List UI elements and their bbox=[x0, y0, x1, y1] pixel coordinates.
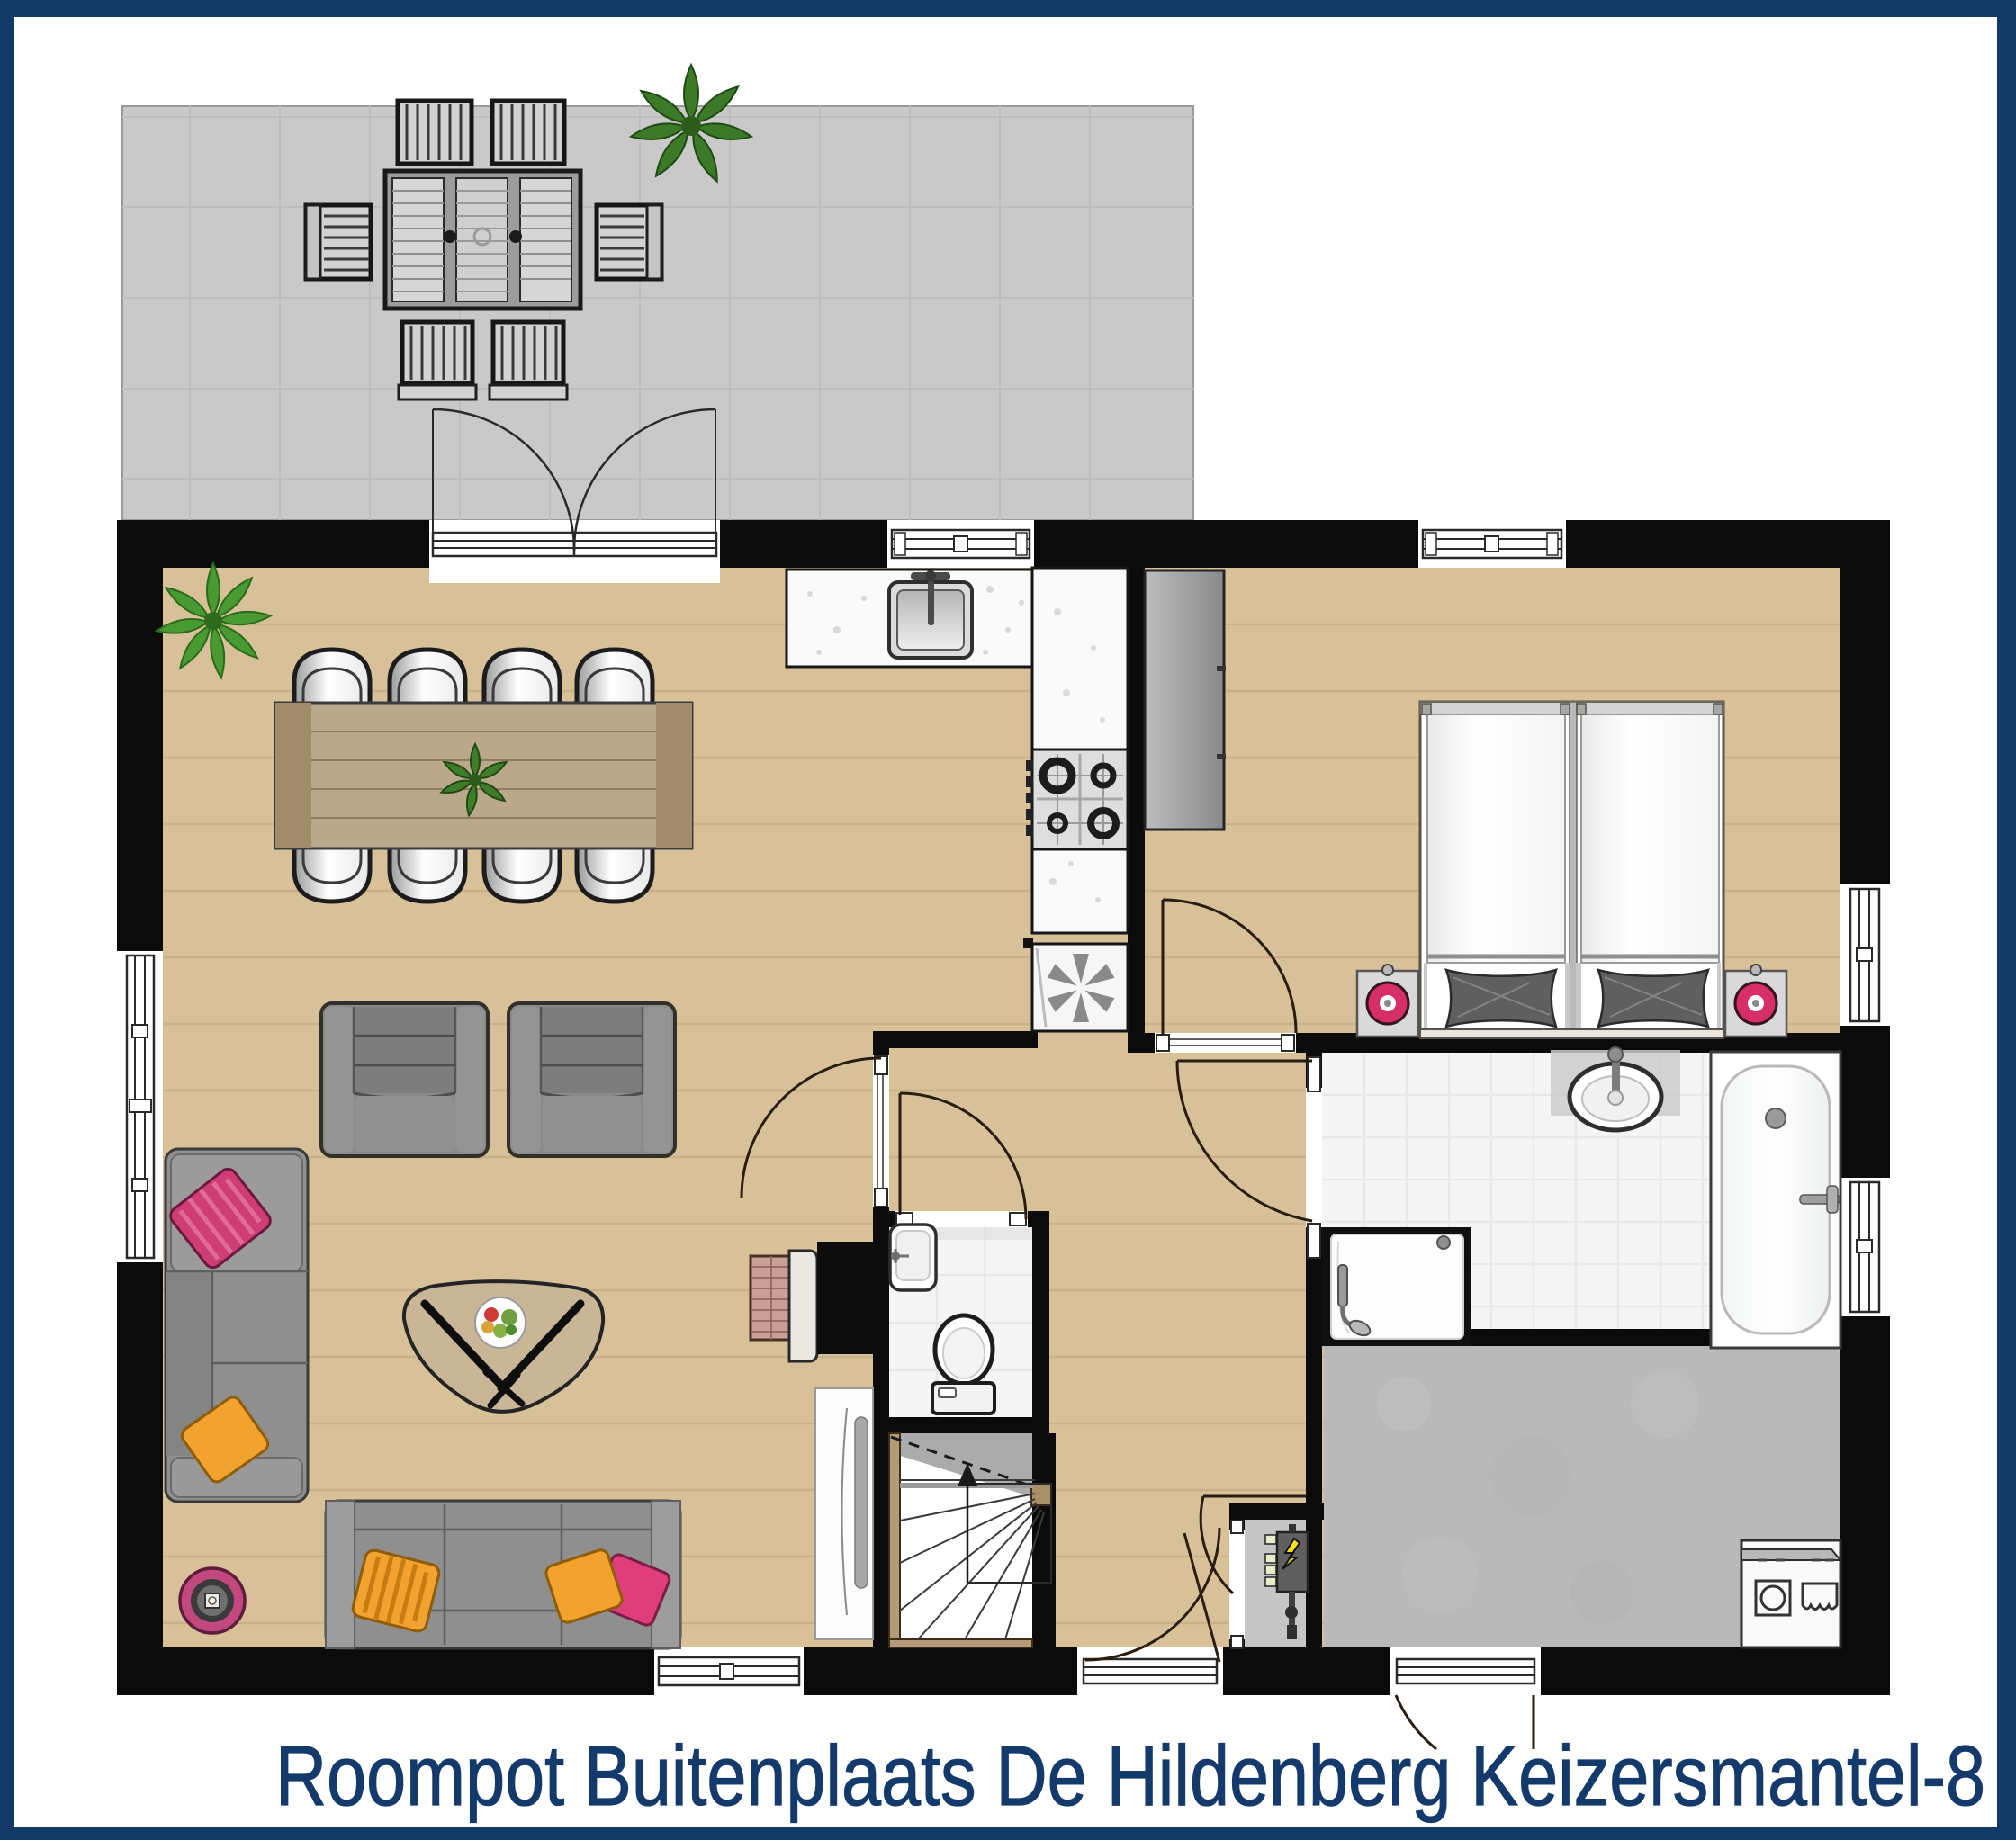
svg-text:Roompot Buitenplaats De Hilden: Roompot Buitenplaats De Hildenberg Keize… bbox=[275, 1728, 1985, 1824]
